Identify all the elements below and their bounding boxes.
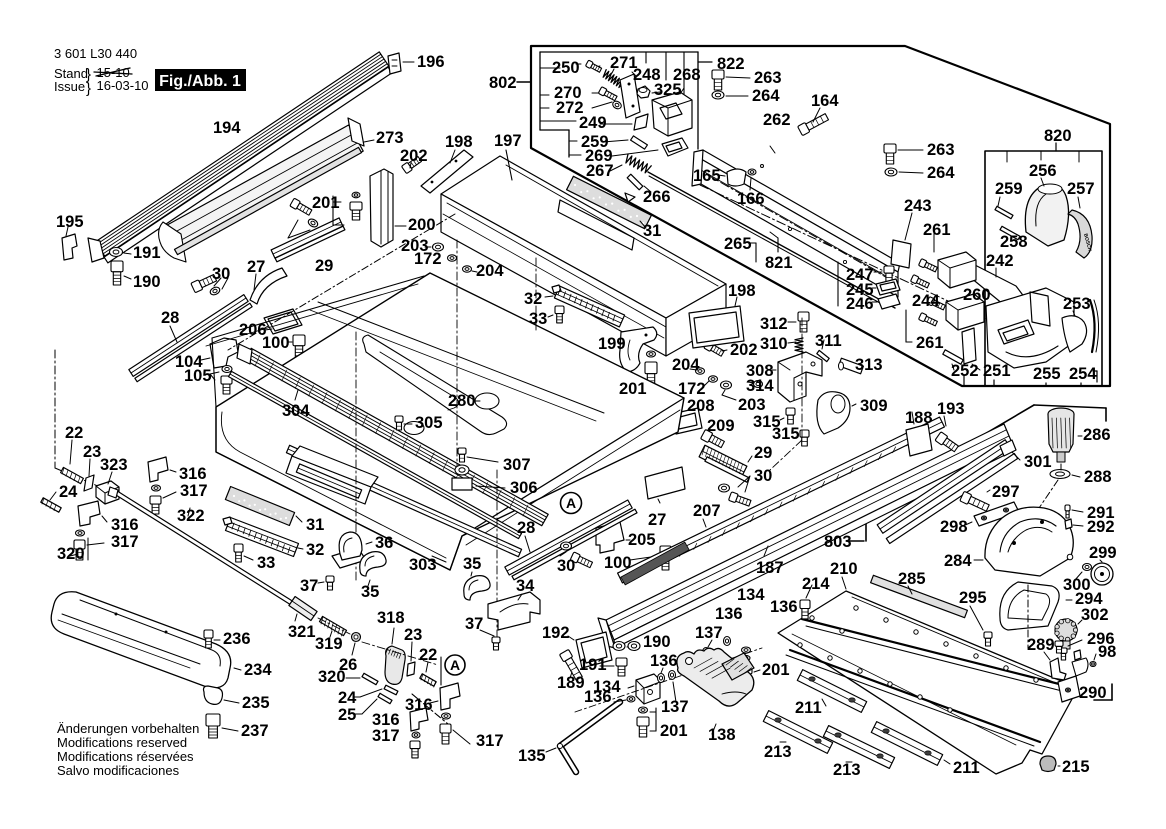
svg-text:138: 138 — [708, 726, 736, 744]
svg-text:3 601 L30 440: 3 601 L30 440 — [54, 46, 137, 61]
svg-text:Issue: Issue — [54, 79, 85, 94]
svg-text:172: 172 — [678, 380, 706, 398]
svg-text:196: 196 — [417, 53, 445, 71]
svg-text:310: 310 — [760, 335, 788, 353]
svg-text:256: 256 — [1029, 162, 1057, 180]
svg-text:204: 204 — [672, 356, 700, 374]
svg-text:25: 25 — [338, 706, 356, 724]
svg-text:257: 257 — [1067, 180, 1095, 198]
svg-text:301: 301 — [1024, 453, 1052, 471]
svg-text:33: 33 — [257, 554, 275, 572]
svg-text:315: 315 — [772, 425, 800, 443]
svg-text:320: 320 — [57, 545, 85, 563]
svg-text:31: 31 — [306, 516, 324, 534]
svg-text:280: 280 — [448, 392, 476, 410]
svg-text:29: 29 — [315, 257, 333, 275]
svg-text:207: 207 — [693, 502, 721, 520]
svg-text:24: 24 — [59, 483, 78, 501]
svg-text:265: 265 — [724, 235, 752, 253]
svg-text:193: 193 — [937, 400, 965, 418]
svg-text:24: 24 — [338, 689, 357, 707]
svg-text:252: 252 — [951, 362, 979, 380]
svg-text:299: 299 — [1089, 544, 1117, 562]
svg-text:319: 319 — [315, 635, 343, 653]
svg-text:251: 251 — [983, 362, 1011, 380]
svg-text:195: 195 — [56, 213, 84, 231]
svg-text:320: 320 — [318, 668, 346, 686]
svg-text:188: 188 — [905, 409, 933, 427]
svg-text:201: 201 — [312, 194, 340, 212]
svg-text:264: 264 — [927, 164, 955, 182]
svg-text:A: A — [566, 495, 576, 511]
svg-text:197: 197 — [494, 132, 522, 150]
svg-text:30: 30 — [754, 467, 772, 485]
svg-text:298: 298 — [940, 518, 968, 536]
svg-text:201: 201 — [619, 380, 647, 398]
svg-text:307: 307 — [503, 456, 531, 474]
svg-text:236: 236 — [223, 630, 251, 648]
svg-text:190: 190 — [643, 633, 671, 651]
svg-text:316: 316 — [179, 465, 207, 483]
svg-text:203: 203 — [738, 396, 766, 414]
svg-text:194: 194 — [213, 119, 241, 137]
svg-text:325: 325 — [654, 81, 682, 99]
svg-text:30: 30 — [557, 557, 575, 575]
svg-text:318: 318 — [377, 609, 405, 627]
svg-text:22: 22 — [65, 424, 83, 442]
svg-text:191: 191 — [133, 244, 161, 262]
svg-text:273: 273 — [376, 129, 404, 147]
svg-text:Änderungen vorbehalten: Änderungen vorbehalten — [57, 721, 199, 736]
svg-text:285: 285 — [898, 570, 926, 588]
svg-text:249: 249 — [579, 114, 607, 132]
svg-text:198: 198 — [445, 133, 473, 151]
svg-text:28: 28 — [161, 309, 179, 327]
svg-text:288: 288 — [1084, 468, 1112, 486]
svg-text:234: 234 — [244, 661, 272, 679]
svg-text:22: 22 — [419, 646, 437, 664]
svg-text:201: 201 — [660, 722, 688, 740]
svg-text:16-03-10: 16-03-10 — [97, 78, 149, 93]
svg-text:35: 35 — [361, 583, 379, 601]
svg-text:250: 250 — [552, 59, 580, 77]
svg-text:305: 305 — [415, 414, 443, 432]
svg-text:172: 172 — [414, 250, 442, 268]
svg-text:35: 35 — [463, 555, 481, 573]
svg-text:187: 187 — [756, 559, 784, 577]
svg-text:262: 262 — [763, 111, 791, 129]
svg-text:134: 134 — [737, 586, 765, 604]
svg-text:802: 802 — [489, 74, 517, 92]
svg-text:202: 202 — [730, 341, 758, 359]
svg-text:136: 136 — [715, 605, 743, 623]
svg-text:253: 253 — [1063, 295, 1091, 313]
svg-text:210: 210 — [830, 560, 858, 578]
svg-text:260: 260 — [963, 286, 991, 304]
svg-text:23: 23 — [404, 626, 422, 644]
svg-text:192: 192 — [542, 624, 570, 642]
svg-text:29: 29 — [754, 444, 772, 462]
svg-text:191: 191 — [579, 656, 607, 674]
svg-text:190: 190 — [133, 273, 161, 291]
svg-text:98: 98 — [1098, 643, 1116, 661]
svg-text:136: 136 — [584, 688, 612, 706]
svg-text:100: 100 — [604, 554, 632, 572]
svg-text:164: 164 — [811, 92, 839, 110]
svg-text:Salvo modificaciones: Salvo modificaciones — [57, 763, 180, 778]
svg-text:255: 255 — [1033, 365, 1061, 383]
svg-text:297: 297 — [992, 483, 1020, 501]
svg-text:243: 243 — [904, 197, 932, 215]
svg-text:316: 316 — [405, 696, 433, 714]
svg-text:264: 264 — [752, 87, 780, 105]
svg-text:136: 136 — [770, 598, 798, 616]
svg-text:211: 211 — [953, 759, 980, 777]
svg-text:317: 317 — [476, 732, 504, 750]
svg-text:803: 803 — [824, 533, 852, 551]
svg-text:254: 254 — [1069, 365, 1097, 383]
svg-text:321: 321 — [288, 623, 316, 641]
svg-text:205: 205 — [628, 531, 656, 549]
svg-text:100: 100 — [262, 334, 290, 352]
svg-text:289: 289 — [1027, 636, 1055, 654]
svg-text:261: 261 — [916, 334, 944, 352]
svg-text:323: 323 — [100, 456, 128, 474]
svg-text:105: 105 — [184, 367, 212, 385]
svg-text:821: 821 — [765, 254, 793, 272]
svg-text:137: 137 — [695, 624, 723, 642]
svg-text:27: 27 — [247, 258, 265, 276]
svg-text:213: 213 — [764, 743, 792, 761]
svg-text:32: 32 — [524, 290, 542, 308]
svg-text:266: 266 — [643, 188, 671, 206]
svg-text:258: 258 — [1000, 233, 1028, 251]
svg-text:311: 311 — [815, 332, 842, 350]
svg-text:Fig./Abb. 1: Fig./Abb. 1 — [159, 73, 241, 90]
svg-text:215: 215 — [1062, 758, 1090, 776]
svg-text:302: 302 — [1081, 606, 1109, 624]
svg-text:208: 208 — [687, 397, 715, 415]
svg-text:244: 244 — [912, 292, 940, 310]
svg-text:204: 204 — [476, 262, 504, 280]
svg-text:292: 292 — [1087, 518, 1115, 536]
svg-text:259: 259 — [995, 180, 1023, 198]
svg-text:314: 314 — [746, 377, 774, 395]
svg-text:211: 211 — [795, 699, 822, 717]
svg-text:312: 312 — [760, 315, 788, 333]
svg-text:27: 27 — [648, 511, 666, 529]
svg-text:37: 37 — [465, 615, 483, 633]
svg-text:242: 242 — [986, 252, 1014, 270]
svg-text:30: 30 — [212, 265, 230, 283]
svg-text:286: 286 — [1083, 426, 1111, 444]
svg-text:}: } — [86, 80, 91, 97]
svg-text:166: 166 — [737, 190, 765, 208]
svg-text:136: 136 — [650, 652, 678, 670]
svg-text:261: 261 — [923, 221, 951, 239]
svg-text:189: 189 — [557, 674, 585, 692]
svg-text:28: 28 — [517, 519, 535, 537]
svg-text:317: 317 — [372, 727, 400, 745]
svg-text:34: 34 — [516, 577, 535, 595]
svg-text:295: 295 — [959, 589, 987, 607]
svg-text:214: 214 — [802, 575, 830, 593]
svg-text:Modifications reserved: Modifications reserved — [57, 735, 187, 750]
svg-text:165: 165 — [693, 167, 721, 185]
svg-text:Modifications réservées: Modifications réservées — [57, 749, 194, 764]
svg-text:198: 198 — [728, 282, 756, 300]
svg-text:32: 32 — [306, 541, 324, 559]
svg-text:A: A — [450, 657, 460, 673]
svg-text:306: 306 — [510, 479, 538, 497]
svg-text:36: 36 — [375, 534, 393, 552]
svg-text:23: 23 — [83, 443, 101, 461]
svg-text:309: 309 — [860, 397, 888, 415]
svg-text:267: 267 — [586, 162, 614, 180]
svg-text:303: 303 — [409, 556, 437, 574]
svg-text:263: 263 — [927, 141, 955, 159]
svg-text:822: 822 — [717, 55, 745, 73]
svg-text:199: 199 — [598, 335, 626, 353]
svg-text:322: 322 — [177, 507, 205, 525]
svg-text:137: 137 — [661, 698, 689, 716]
svg-text:209: 209 — [707, 417, 735, 435]
svg-text:201: 201 — [762, 661, 790, 679]
svg-text:290: 290 — [1079, 684, 1107, 702]
svg-text:313: 313 — [855, 356, 883, 374]
svg-text:246: 246 — [846, 295, 874, 313]
svg-text:202: 202 — [400, 147, 428, 165]
svg-text:135: 135 — [518, 747, 546, 765]
svg-text:317: 317 — [180, 482, 208, 500]
svg-text:235: 235 — [242, 694, 270, 712]
svg-text:237: 237 — [241, 722, 269, 740]
svg-text:263: 263 — [754, 69, 782, 87]
svg-text:316: 316 — [111, 516, 139, 534]
svg-text:31: 31 — [643, 222, 661, 240]
svg-text:213: 213 — [833, 761, 861, 779]
svg-text:284: 284 — [944, 552, 972, 570]
svg-text:200: 200 — [408, 216, 436, 234]
svg-text:317: 317 — [111, 533, 139, 551]
svg-text:37: 37 — [300, 577, 318, 595]
svg-text:820: 820 — [1044, 127, 1072, 145]
svg-text:33: 33 — [529, 310, 547, 328]
svg-text:304: 304 — [282, 402, 310, 420]
